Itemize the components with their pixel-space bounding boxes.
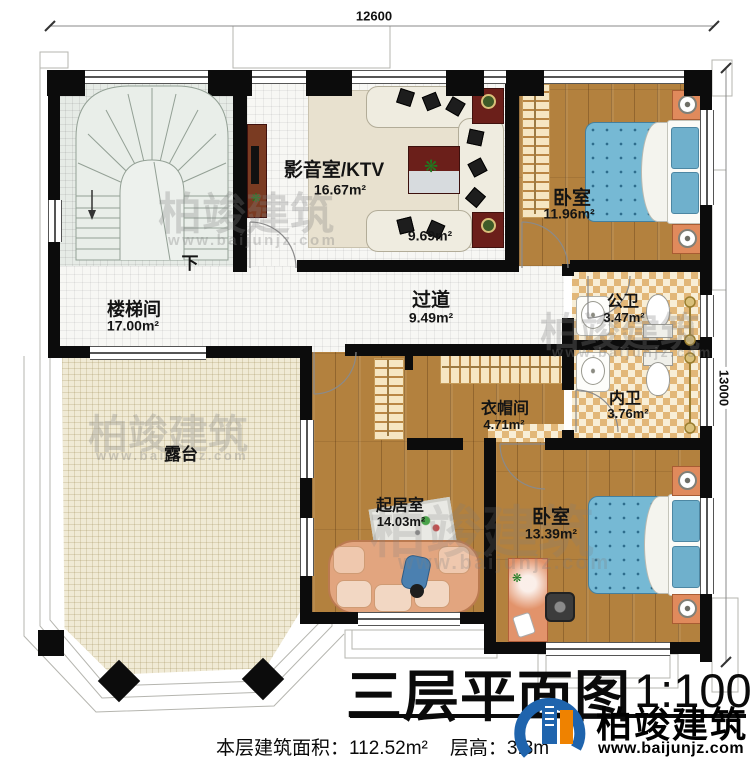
- room-area-cloakroom: 4.71m²: [483, 418, 524, 432]
- toilet-bowl: [646, 294, 670, 328]
- brand-url: www.baijunjz.com: [598, 740, 744, 758]
- tv-icon: [251, 146, 259, 184]
- room-area-bedroom-bottom: 13.39m²: [525, 527, 577, 542]
- sink-basin-icon: [581, 301, 605, 329]
- terrace-floor: [62, 356, 310, 678]
- room-area-bedroom-top: 11.96m²: [543, 207, 594, 222]
- lamp-icon: [678, 95, 697, 114]
- room-label-stair-hall: 楼梯间: [107, 301, 161, 320]
- window: [48, 200, 62, 242]
- room-area-living: 14.03m²: [377, 515, 425, 529]
- dimension-width: 12600: [353, 9, 395, 24]
- floor-area-value: 112.52m²: [349, 738, 428, 759]
- plan-footer: 本层建筑面积：112.52m²层高：3.3m: [216, 733, 549, 760]
- room-area-stair-hall: 17.00m²: [107, 319, 159, 334]
- cloakroom-rod: [442, 366, 566, 368]
- window: [252, 70, 306, 84]
- cabinet-plant-icon: ❋: [251, 192, 261, 204]
- wall: [446, 70, 484, 96]
- sofa-cushion: [438, 546, 470, 574]
- room-label-media: 影音室/KTV: [284, 161, 384, 181]
- wall: [562, 264, 574, 276]
- wall: [233, 70, 247, 272]
- sofa-cushion: [333, 546, 365, 574]
- terrace-door-window: [90, 346, 206, 360]
- speaker-icon: [481, 94, 496, 109]
- wall: [670, 642, 712, 654]
- nightstand: [672, 466, 702, 496]
- room-label-terrace: 露台: [164, 446, 198, 464]
- sofa-cushion: [336, 580, 372, 608]
- lamp-icon: [678, 599, 697, 618]
- desk-chair: [545, 592, 575, 622]
- window: [700, 110, 714, 205]
- window: [700, 358, 714, 426]
- window: [358, 612, 460, 626]
- window: [300, 420, 314, 478]
- toilet-tank: [643, 324, 673, 338]
- speaker-icon: [481, 218, 496, 233]
- window: [352, 70, 446, 84]
- nightstand: [672, 594, 702, 624]
- wall: [505, 70, 519, 272]
- room-label-public-bath: 公卫: [607, 295, 639, 312]
- wall: [570, 260, 712, 272]
- room-label-cloakroom: 衣帽间: [481, 402, 529, 419]
- speaker-cabinet: [472, 212, 504, 248]
- cloakroom-rack-top: [440, 354, 570, 384]
- bed-pillow: [671, 127, 699, 169]
- lamp-icon: [678, 471, 697, 490]
- nightstand: [672, 224, 702, 254]
- floor-area-label: 本层建筑面积：: [216, 738, 349, 759]
- floor-plan-canvas: ❋ ❋ ❋: [0, 0, 750, 772]
- bed-pillow: [671, 172, 699, 214]
- brand-logo-icon: [514, 688, 590, 766]
- desk-plant-icon: ❋: [512, 572, 522, 584]
- window: [85, 70, 208, 84]
- window: [300, 518, 314, 576]
- sink-basin-icon: [581, 357, 605, 385]
- cloakroom-rack-left: [374, 358, 404, 440]
- wall: [405, 352, 413, 370]
- room-area-corridor: 9.49m²: [409, 311, 453, 326]
- wall: [572, 340, 712, 350]
- window: [544, 70, 684, 84]
- wall: [460, 612, 496, 624]
- room-area-private-bath: 3.76m²: [607, 407, 648, 421]
- table-plant-icon: ❋: [424, 158, 438, 175]
- wall: [306, 70, 352, 96]
- room-area-media: 16.67m²: [314, 183, 366, 198]
- wall: [297, 260, 505, 272]
- wall: [300, 346, 312, 624]
- stair-direction-label: 下: [182, 255, 199, 273]
- bed-pillow: [672, 500, 700, 542]
- wall: [206, 346, 312, 358]
- room-area-public-bath: 3.47m²: [603, 311, 644, 325]
- bed-pillow: [672, 546, 700, 588]
- wall: [407, 438, 463, 450]
- wall: [312, 612, 358, 624]
- dimension-height: 13000: [717, 367, 732, 409]
- wardrobe: [522, 84, 550, 218]
- wardrobe-rod: [534, 86, 536, 214]
- window: [700, 498, 714, 594]
- window: [700, 295, 714, 337]
- window: [484, 70, 506, 84]
- wall: [48, 346, 90, 358]
- sofa-pillow: [467, 129, 485, 147]
- person-head: [410, 584, 424, 598]
- sink: [576, 352, 610, 392]
- wall: [345, 344, 563, 356]
- wall: [545, 438, 712, 450]
- lamp-icon: [678, 229, 697, 248]
- room-label-living: 起居室: [376, 499, 424, 516]
- room-area-media-seating: 9.69m²: [408, 229, 452, 244]
- wall: [562, 318, 574, 390]
- room-label-corridor: 过道: [412, 291, 450, 311]
- stair-hall-floor: [58, 82, 235, 272]
- cloakroom-rod: [387, 360, 389, 436]
- toilet-bowl: [646, 362, 670, 396]
- floor-height-label: 层高：: [450, 738, 507, 759]
- terrace-post: [38, 630, 64, 656]
